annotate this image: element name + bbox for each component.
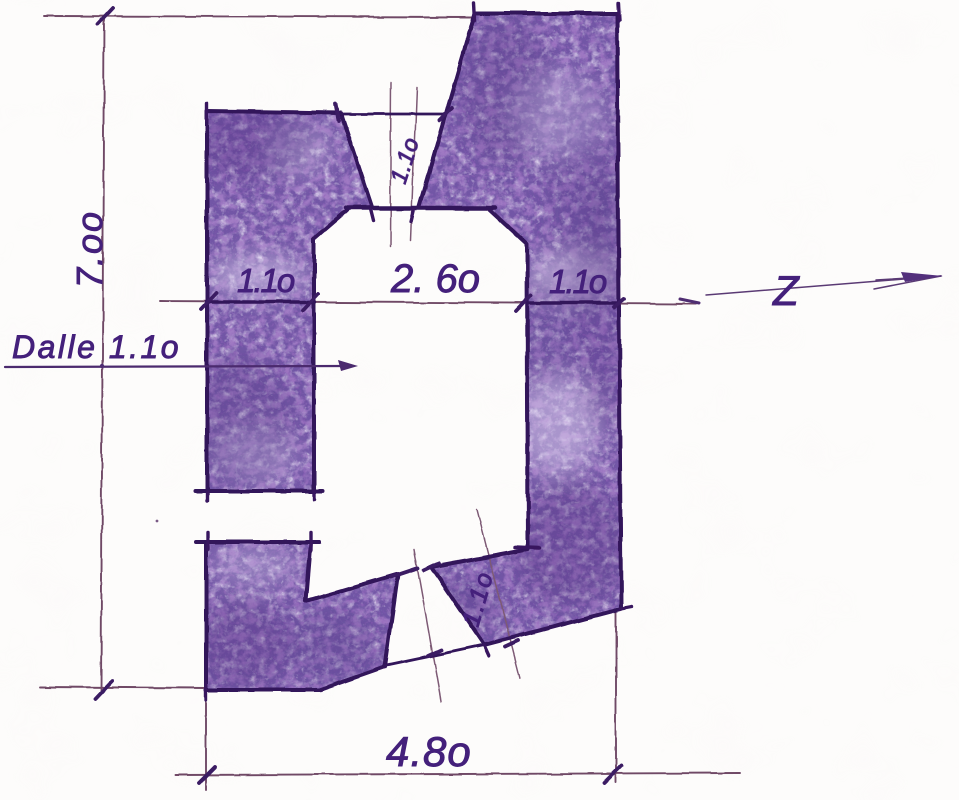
svg-text:2. 6o: 2. 6o [390, 257, 480, 301]
svg-text:7.oo: 7.oo [69, 210, 110, 288]
svg-text:4.8o: 4.8o [386, 728, 472, 775]
svg-text:Z: Z [772, 267, 800, 314]
svg-text:Dalle 1.1o: Dalle 1.1o [12, 329, 181, 365]
svg-text:1.1o: 1.1o [237, 262, 295, 299]
svg-text:1.1o: 1.1o [549, 263, 607, 300]
